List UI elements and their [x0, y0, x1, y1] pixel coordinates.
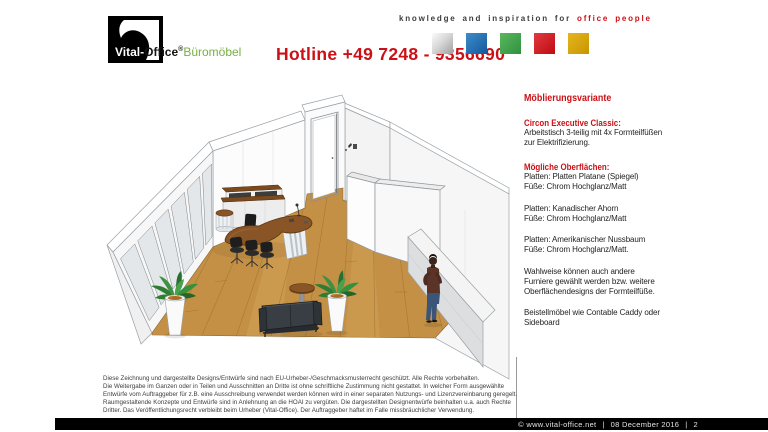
section-line: Wahlweise können auch andere — [524, 267, 762, 277]
back-door — [311, 112, 338, 202]
brand-tagline: knowledge and inspiration for office peo… — [399, 14, 652, 23]
spec-section: Circon Executive Classic: Arbeitstisch 3… — [524, 118, 762, 148]
section-line: Platten: Kanadischer Ahorn — [524, 204, 762, 214]
section-line: Platten: Platten Platane (Spiegel) — [524, 172, 762, 182]
section-line: Beistellmöbel wie Contable Caddy oder — [524, 308, 762, 318]
panel-title: Möblierungsvariante — [524, 92, 726, 104]
section-line: Füße: Chrom Hochglanz/Matt — [524, 182, 762, 192]
color-square-gold — [568, 33, 589, 54]
spec-section: Wahlweise können auch andere Furniere ge… — [524, 267, 762, 297]
brand-color-squares — [432, 33, 589, 54]
color-square-silver — [432, 33, 453, 54]
section-line: Arbeitstisch 3-teilig mit 4x Formteilfüß… — [524, 128, 762, 138]
footer-separator: | — [685, 420, 687, 429]
section-heading: Mögliche Oberflächen: — [524, 162, 733, 172]
disclaimer-line: Die Weitergabe im Ganzen oder in Teilen … — [103, 383, 515, 391]
section-heading: Circon Executive Classic: — [524, 118, 733, 128]
legal-disclaimer: Diese Zeichnung und dargestellte Designs… — [103, 375, 515, 415]
section-line: zur Elektrifizierung. — [524, 138, 762, 148]
footer-bar: © www.vital-office.net | 08 December 201… — [55, 418, 768, 430]
logo-text-bueromoebel: Büromöbel — [183, 45, 241, 59]
logo-text-office: Office — [144, 45, 178, 59]
spec-section: Platten: Kanadischer Ahorn Füße: Chrom H… — [524, 204, 762, 224]
color-square-red — [534, 33, 555, 54]
disclaimer-line: Dritter. Das Veröffentlichungsrecht verb… — [103, 407, 515, 415]
disclaimer-line: Diese Zeichnung und dargestellte Designs… — [103, 375, 515, 383]
spec-section: Mögliche Oberflächen: Platten: Platten P… — [524, 162, 762, 192]
spec-section: Beistellmöbel wie Contable Caddy oder Si… — [524, 308, 762, 328]
vertical-divider — [516, 357, 517, 418]
footer-page-number: 2 — [694, 420, 698, 429]
specification-panel: Möblierungsvariante Circon Executive Cla… — [524, 92, 762, 328]
disclaimer-line: Entwürfe vom Auftraggeber für z.B. eine … — [103, 391, 515, 399]
spec-section: Platten: Amerikanischer Nussbaum Füße: C… — [524, 235, 762, 255]
logo-text-vital: Vital- — [115, 45, 144, 59]
office-room-3d-rendering — [95, 82, 515, 382]
disclaimer-line: Raumgestaltende Konzepte und Entwürfe si… — [103, 399, 515, 407]
presentation-slide: Vital-Office®Büromöbel Hotline +49 7248 … — [0, 0, 768, 432]
tagline-prefix: knowledge and inspiration for — [399, 14, 571, 23]
footer-copyright: © www.vital-office.net — [518, 420, 596, 429]
footer-date: 08 December 2016 — [611, 420, 680, 429]
section-line: Platten: Amerikanischer Nussbaum — [524, 235, 762, 245]
footer-separator: | — [602, 420, 604, 429]
color-square-blue — [466, 33, 487, 54]
color-square-green — [500, 33, 521, 54]
section-line: Sideboard — [524, 318, 762, 328]
tagline-highlight: office people — [577, 14, 652, 23]
section-line: Füße: Chrom Hochglanz/Matt — [524, 214, 762, 224]
contable-caddy — [216, 210, 233, 232]
section-line: Furniere gewählt werden bzw. weitere — [524, 277, 762, 287]
logo-wordmark: Vital-Office®Büromöbel — [115, 45, 241, 59]
section-line: Füße: Chrom Hochglanz/Matt. — [524, 245, 762, 255]
section-line: Oberflächendesigns der Formteilfüße. — [524, 287, 762, 297]
